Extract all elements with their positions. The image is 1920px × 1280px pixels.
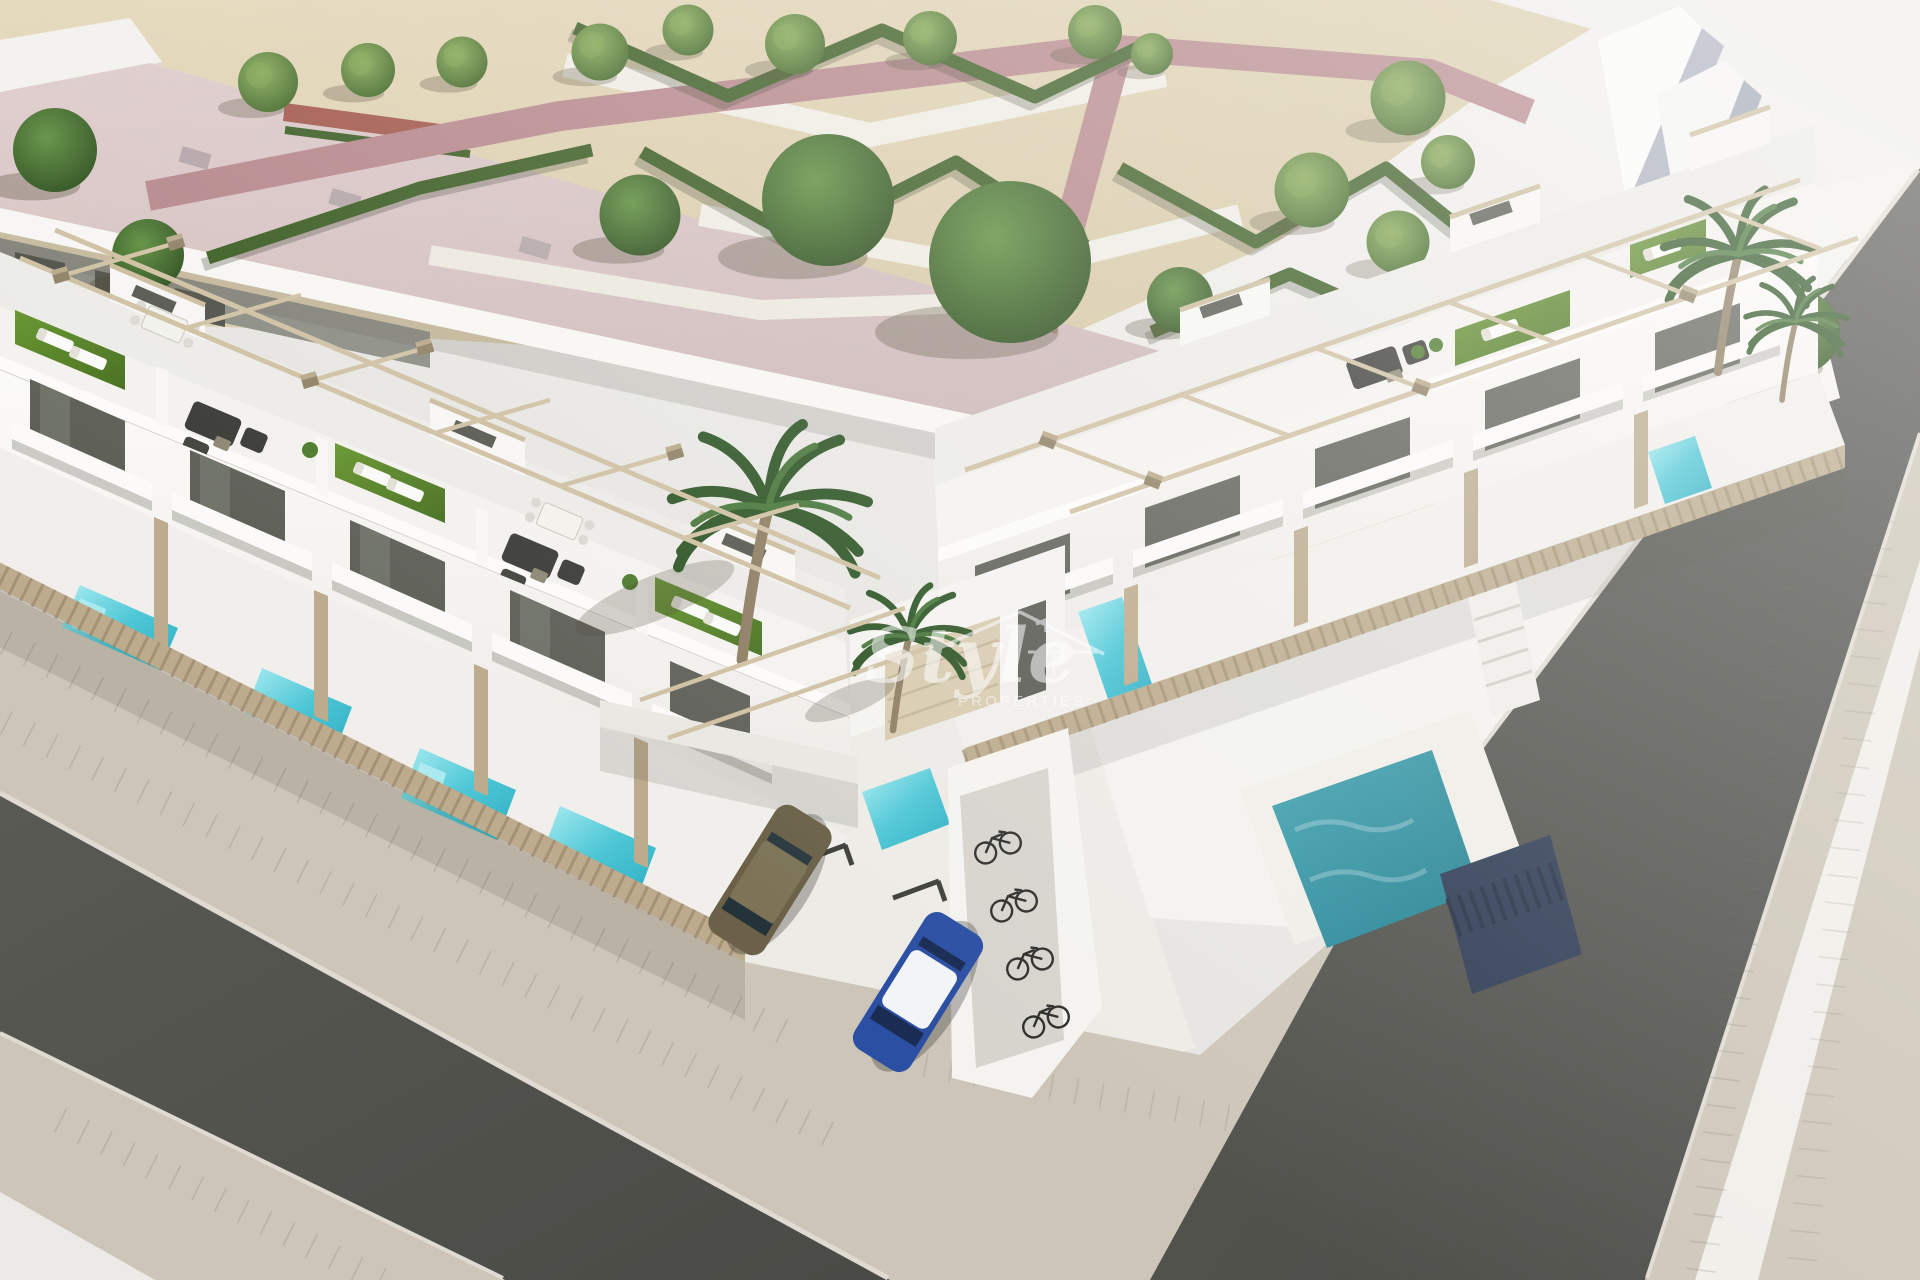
architectural-render: Style PROPERTIES (0, 0, 1920, 1280)
watermark: Style PROPERTIES (865, 611, 1104, 710)
render-canvas: Style PROPERTIES (0, 0, 1920, 1280)
brand-name: Style (865, 611, 1076, 700)
brand-subtitle: PROPERTIES (958, 693, 1086, 710)
